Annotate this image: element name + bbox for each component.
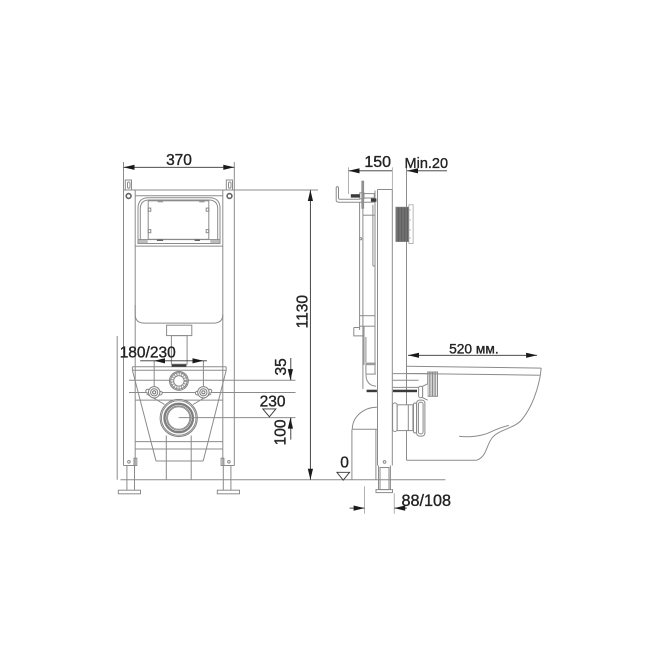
- svg-text:100: 100: [272, 419, 289, 445]
- svg-text:0: 0: [340, 455, 349, 472]
- svg-text:88/108: 88/108: [402, 492, 452, 510]
- svg-text:35: 35: [273, 358, 290, 375]
- svg-text:150: 150: [364, 154, 391, 171]
- svg-text:230: 230: [260, 394, 286, 411]
- svg-text:180/230: 180/230: [120, 345, 176, 362]
- svg-text:1130: 1130: [295, 295, 312, 329]
- svg-text:370: 370: [166, 152, 192, 169]
- svg-text:Min.20: Min.20: [405, 156, 449, 172]
- svg-text:520 мм.: 520 мм.: [449, 342, 499, 357]
